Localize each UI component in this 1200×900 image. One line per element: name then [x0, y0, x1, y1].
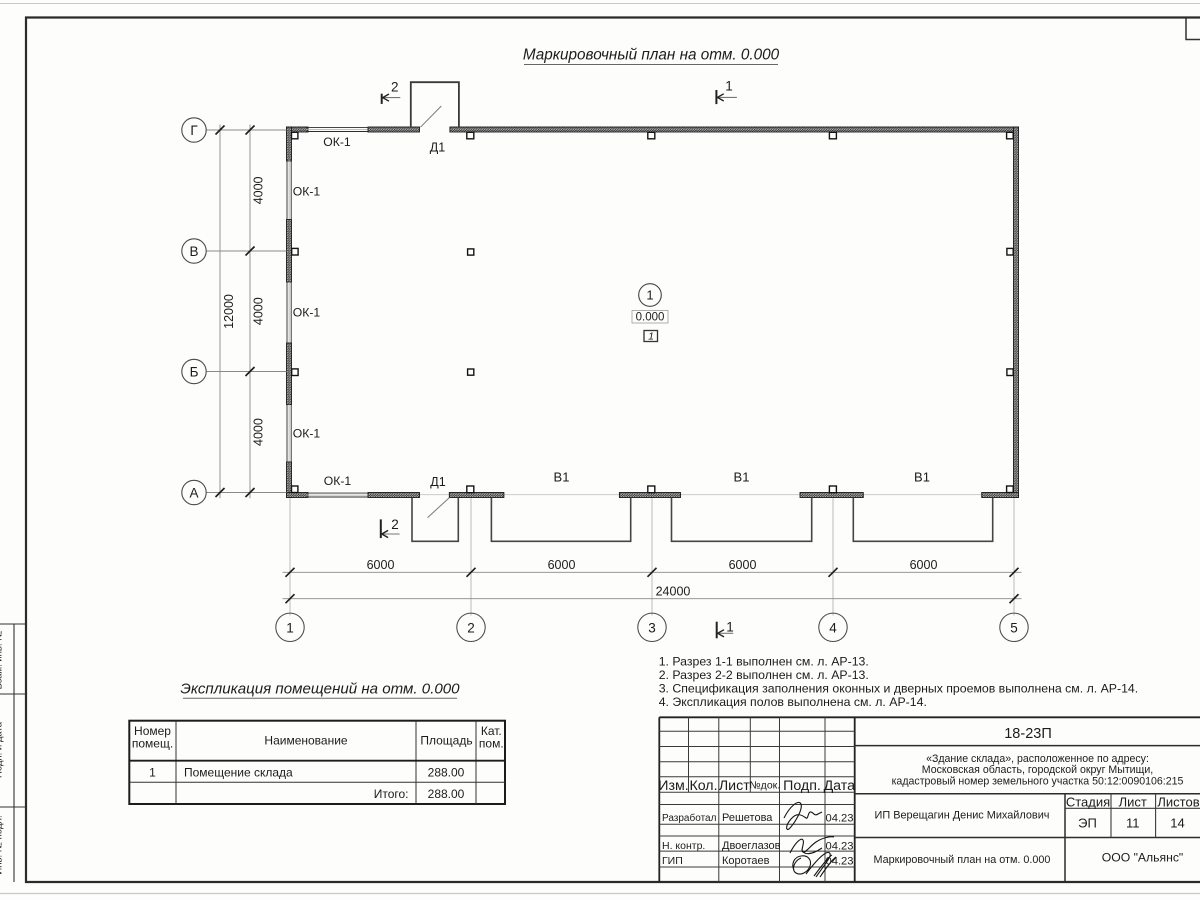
svg-text:Маркировочный план на отм. 0.0: Маркировочный план на отм. 0.000	[523, 47, 780, 64]
svg-text:Н. контр.: Н. контр.	[662, 840, 705, 852]
svg-text:288.00: 288.00	[428, 765, 465, 779]
svg-text:ОК-1: ОК-1	[293, 427, 321, 441]
svg-text:5: 5	[1010, 620, 1018, 635]
svg-text:Стадия: Стадия	[1066, 794, 1110, 809]
svg-text:1: 1	[149, 765, 156, 779]
svg-text:Подп. и дата: Подп. и дата	[0, 721, 5, 778]
svg-text:В1: В1	[734, 470, 750, 485]
svg-text:6000: 6000	[910, 558, 938, 572]
svg-text:Разработал: Разработал	[662, 812, 717, 824]
svg-text:Подп.: Подп.	[783, 778, 821, 794]
svg-text:ОК-1: ОК-1	[323, 135, 351, 149]
svg-text:Инв. № подл.: Инв. № подл.	[0, 815, 5, 874]
svg-text:Площадь: Площадь	[420, 734, 472, 748]
svg-text:Взам. инв. №: Взам. инв. №	[0, 631, 5, 690]
svg-text:В: В	[189, 244, 198, 259]
svg-text:6000: 6000	[729, 558, 757, 572]
svg-text:ОК-1: ОК-1	[324, 474, 352, 488]
svg-text:Коротаев: Коротаев	[722, 855, 770, 867]
svg-text:1. Разрез 1-1 выполнен см. л.: 1. Разрез 1-1 выполнен см. л. АР-13.	[659, 655, 869, 669]
svg-text:2: 2	[391, 517, 399, 532]
svg-text:помещ.: помещ.	[132, 737, 173, 751]
svg-text:3. Спецификация заполнения око: 3. Спецификация заполнения оконных и две…	[659, 682, 1138, 696]
svg-text:Лист: Лист	[719, 778, 750, 794]
svg-text:4: 4	[829, 620, 837, 635]
svg-text:пом.: пом.	[479, 737, 504, 751]
svg-text:ИП Верещагин Денис Михайлович: ИП Верещагин Денис Михайлович	[875, 809, 1050, 821]
svg-text:1: 1	[648, 331, 654, 343]
svg-text:6000: 6000	[367, 558, 395, 572]
svg-text:Д1: Д1	[430, 475, 445, 489]
svg-text:6000: 6000	[548, 558, 576, 572]
svg-text:кадастровый номер земельного у: кадастровый номер земельного участка 50:…	[892, 775, 1184, 787]
svg-text:А: А	[189, 485, 198, 500]
svg-text:ГИП: ГИП	[662, 855, 683, 867]
svg-text:14: 14	[1170, 816, 1184, 831]
svg-text:№док.: №док.	[749, 779, 780, 791]
svg-text:ОК-1: ОК-1	[293, 185, 321, 199]
svg-text:18-23П: 18-23П	[1004, 726, 1052, 742]
svg-text:Б: Б	[190, 364, 199, 379]
svg-text:Маркировочный план на отм. 0.0: Маркировочный план на отм. 0.000	[874, 854, 1051, 866]
svg-text:ОК-1: ОК-1	[293, 306, 321, 320]
svg-text:Помещение склада: Помещение склада	[184, 765, 293, 779]
svg-text:Двоеглазов: Двоеглазов	[722, 840, 781, 852]
svg-text:Наименование: Наименование	[264, 734, 348, 748]
svg-text:В1: В1	[554, 470, 570, 485]
svg-text:Московская область, городской: Московская область, городской округ Мыти…	[922, 764, 1153, 776]
svg-text:04.23: 04.23	[826, 841, 854, 853]
svg-text:ООО "Альянс": ООО "Альянс"	[1102, 851, 1184, 865]
svg-text:Изм.: Изм.	[658, 778, 688, 794]
svg-text:Итого:: Итого:	[374, 787, 409, 801]
svg-text:4000: 4000	[252, 297, 266, 325]
svg-text:Решетова: Решетова	[722, 812, 773, 824]
svg-text:1: 1	[725, 79, 733, 94]
svg-text:12000: 12000	[222, 294, 236, 329]
svg-text:Листов: Листов	[1157, 794, 1199, 809]
svg-text:4000: 4000	[252, 176, 266, 204]
svg-text:В1: В1	[914, 470, 930, 485]
svg-text:2: 2	[391, 79, 399, 94]
svg-text:Экспликация помещений на отм.: Экспликация помещений на отм. 0.000	[180, 681, 460, 698]
svg-text:1: 1	[286, 620, 294, 635]
svg-text:Д1: Д1	[430, 141, 445, 155]
svg-text:2: 2	[467, 620, 475, 635]
svg-text:11: 11	[1126, 816, 1140, 831]
svg-text:3: 3	[648, 620, 656, 635]
svg-text:2. Разрез 2-2 выполнен см. л.: 2. Разрез 2-2 выполнен см. л. АР-13.	[659, 668, 869, 682]
svg-text:0.000: 0.000	[636, 312, 665, 324]
svg-text:Кол.: Кол.	[689, 778, 717, 794]
svg-text:24000: 24000	[656, 585, 691, 599]
svg-text:Г: Г	[190, 123, 198, 138]
svg-text:Лист: Лист	[1119, 794, 1147, 809]
svg-text:1: 1	[726, 620, 734, 635]
svg-text:288.00: 288.00	[428, 787, 465, 801]
svg-text:ЭП: ЭП	[1078, 816, 1097, 831]
svg-text:04.23: 04.23	[826, 813, 854, 825]
svg-text:1: 1	[646, 288, 653, 303]
svg-text:4. Экспликация полов выполнена: 4. Экспликация полов выполнена см. л. АР…	[659, 695, 927, 709]
svg-text:4000: 4000	[252, 418, 266, 446]
svg-text:Дата: Дата	[824, 778, 856, 794]
